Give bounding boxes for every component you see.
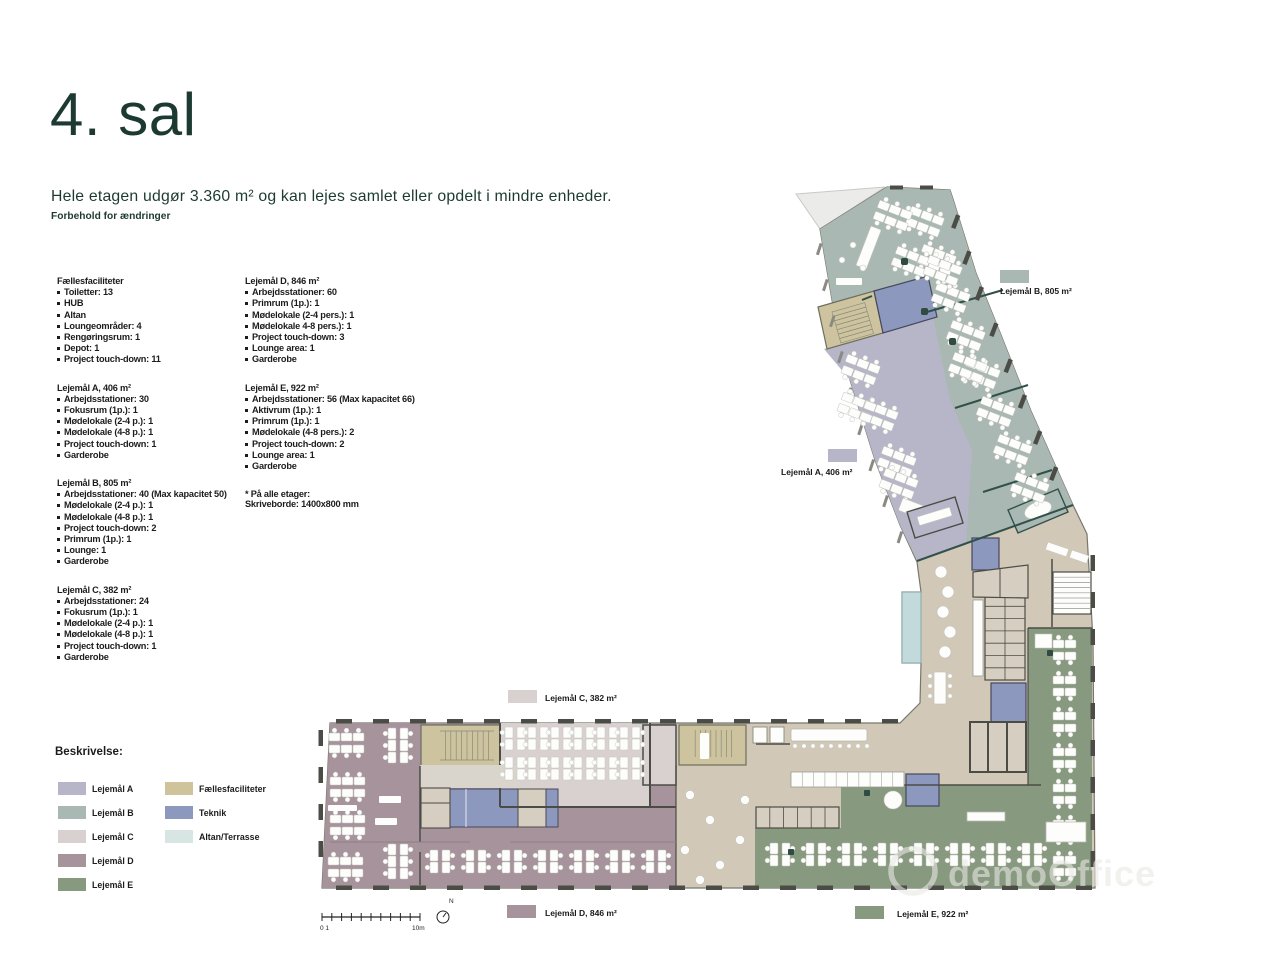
svg-text:demoOffice: demoOffice bbox=[948, 853, 1156, 894]
svg-text:10m: 10m bbox=[412, 925, 425, 932]
svg-text:Lejemål E, 922 m²: Lejemål E, 922 m² bbox=[897, 909, 969, 919]
svg-text:Lejemål C, 382 m²: Lejemål C, 382 m² bbox=[545, 693, 617, 703]
svg-text:Lejemål B, 805 m²: Lejemål B, 805 m² bbox=[1000, 286, 1072, 296]
svg-text:Lejemål A, 406 m²: Lejemål A, 406 m² bbox=[781, 467, 853, 477]
svg-text:0 1: 0 1 bbox=[320, 925, 329, 932]
svg-text:Lejemål D, 846 m²: Lejemål D, 846 m² bbox=[545, 908, 617, 918]
svg-text:N: N bbox=[449, 898, 454, 905]
